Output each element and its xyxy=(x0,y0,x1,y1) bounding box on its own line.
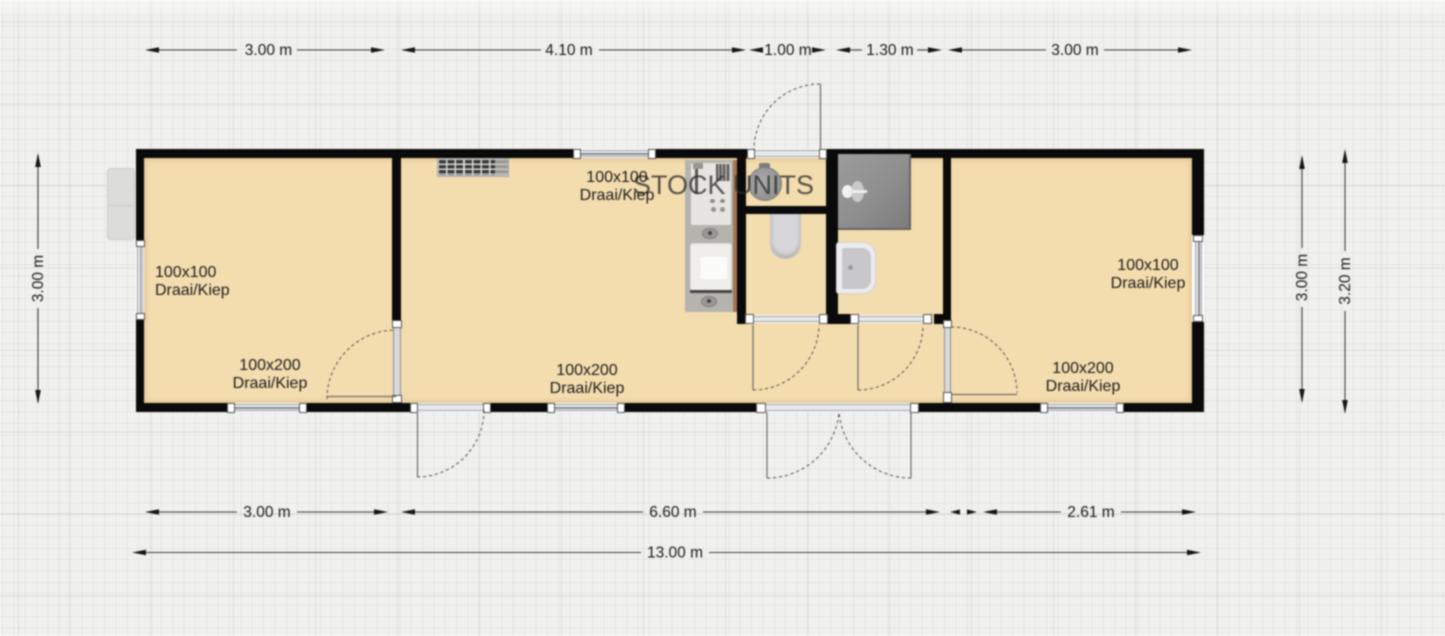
svg-text:3.20 m: 3.20 m xyxy=(1337,257,1354,304)
svg-text:13.00 m: 13.00 m xyxy=(647,545,703,562)
svg-text:6.60 m: 6.60 m xyxy=(649,504,696,521)
svg-text:3.00 m: 3.00 m xyxy=(30,255,47,302)
svg-text:1.00 m: 1.00 m xyxy=(764,42,811,59)
svg-text:3.00 m: 3.00 m xyxy=(1051,42,1098,59)
svg-text:3.00 m: 3.00 m xyxy=(1294,254,1311,301)
svg-text:3.00 m: 3.00 m xyxy=(245,42,292,59)
svg-text:2.61 m: 2.61 m xyxy=(1067,504,1114,521)
svg-text:1.30 m: 1.30 m xyxy=(866,42,913,59)
svg-text:3.00 m: 3.00 m xyxy=(243,504,290,521)
svg-text:4.10 m: 4.10 m xyxy=(545,42,592,59)
